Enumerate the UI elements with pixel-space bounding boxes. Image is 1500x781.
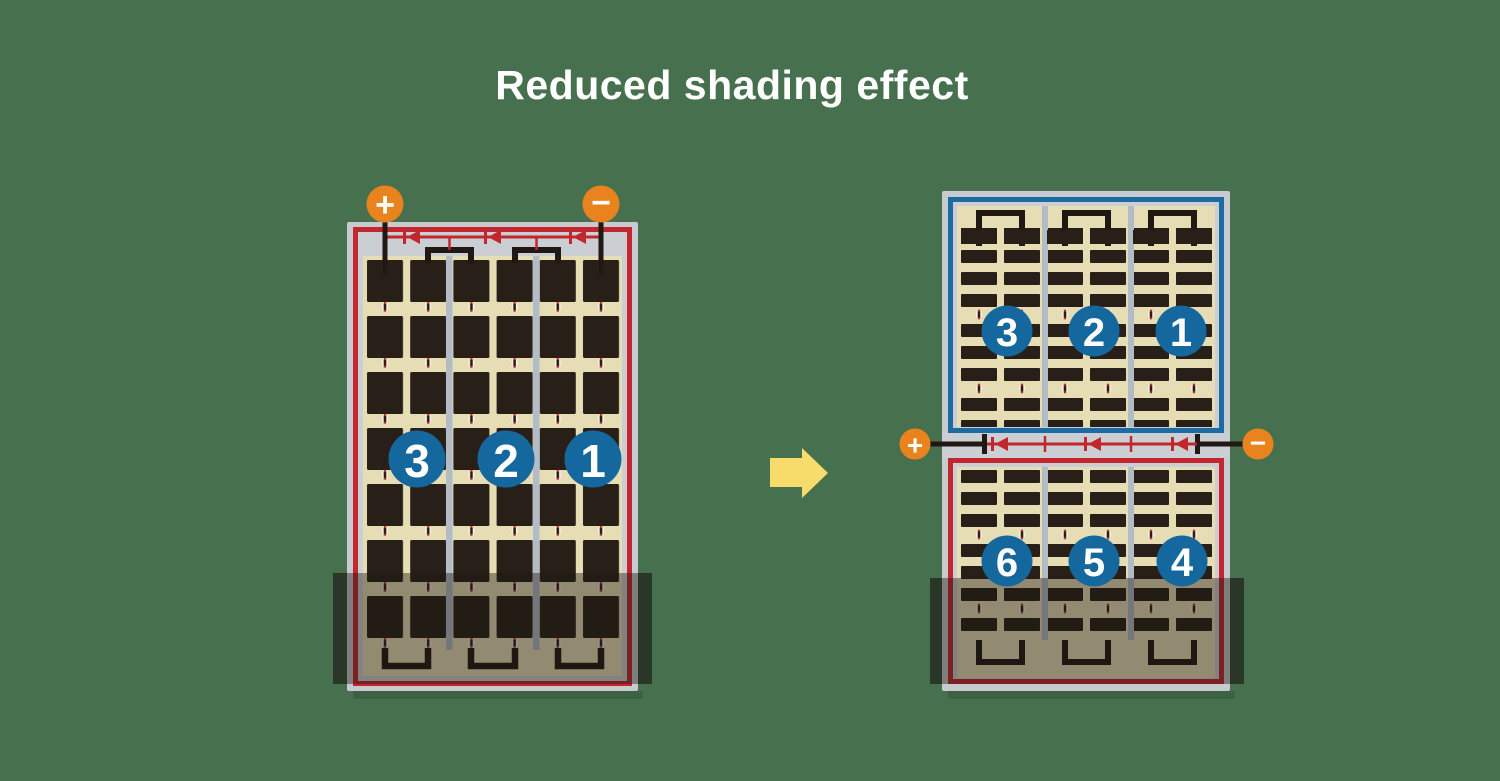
string-number: 3 (404, 435, 430, 487)
half-cell (1176, 230, 1212, 244)
string-number: 2 (1083, 311, 1105, 355)
minus-icon: − (591, 184, 611, 222)
shade-band (347, 573, 638, 684)
top-busbar-area (957, 206, 1215, 228)
string-badge-1: 1 (1156, 306, 1207, 357)
string-badge-3: 3 (982, 306, 1033, 357)
shade-band (942, 578, 1230, 684)
string-number: 5 (1083, 541, 1105, 585)
shade-overhang-left (333, 573, 347, 684)
right-module: + − 3 2 1 6 5 (900, 191, 1274, 699)
junction-band (930, 433, 1245, 458)
string-badge-5: 5 (1069, 536, 1120, 587)
string-badge-4: 4 (1157, 536, 1208, 587)
shade-overlay (930, 578, 1244, 684)
string-number: 2 (493, 435, 519, 487)
background (0, 0, 1500, 781)
string-number: 4 (1171, 541, 1194, 585)
half-cell (1004, 230, 1040, 244)
string-badge-2: 2 (478, 431, 535, 488)
infographic-canvas: + − 3 2 1 (0, 0, 1500, 781)
plus-icon: + (375, 186, 395, 224)
string-number: 1 (580, 435, 606, 487)
string-number: 6 (996, 541, 1018, 585)
junction-bar (982, 434, 987, 454)
half-cell (1133, 230, 1169, 244)
string-number: 1 (1170, 311, 1192, 355)
plus-icon: + (907, 430, 923, 461)
shade-overhang-left (930, 578, 942, 684)
string-badge-1: 1 (565, 431, 622, 488)
left-module: + − 3 2 1 (333, 184, 652, 699)
panel-shadow (353, 691, 643, 699)
half-cell (1047, 230, 1083, 244)
string-badge-2: 2 (1069, 306, 1120, 357)
minus-icon: − (1250, 428, 1266, 459)
half-cell (961, 230, 997, 244)
shade-overhang-right (1230, 578, 1244, 684)
shade-overlay (333, 573, 652, 684)
shading-diagram: + − 3 2 1 (0, 0, 1500, 781)
diagram-title: Reduced shading effect (232, 62, 1232, 109)
string-badge-3: 3 (389, 431, 446, 488)
half-cell (1090, 230, 1126, 244)
shade-overhang-right (638, 573, 652, 684)
string-badge-6: 6 (982, 536, 1033, 587)
string-number: 3 (996, 311, 1018, 355)
panel-shadow (948, 691, 1235, 699)
